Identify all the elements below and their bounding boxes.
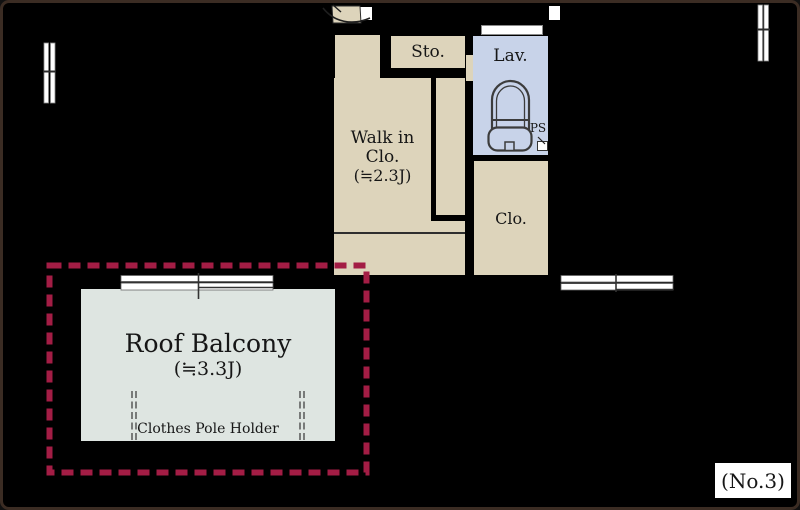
roof-balcony-title: Roof Balcony [81, 330, 335, 358]
plan-number-box: (No.3) [715, 463, 791, 498]
clothes-pole-holder-label: Clothes Pole Holder [81, 422, 335, 438]
floor-plan: Sto. Walk in Clo. (≒2.3J) Lav. PS Clo. R… [0, 0, 800, 510]
walk-in-closet-size: (≒2.3J) [334, 167, 431, 185]
pipe-space-box [537, 141, 548, 151]
sliding-window-icon [561, 274, 673, 292]
window-icon [757, 5, 770, 61]
pipe-space-label: PS [527, 122, 549, 135]
lavatory-label: Lav. [473, 47, 548, 66]
entry-area [335, 35, 380, 78]
window-icon [43, 43, 56, 103]
closet-label: Clo. [495, 209, 527, 228]
interior-wall-line [334, 232, 465, 234]
walk-in-closet-label: Walk in Clo. (≒2.3J) [334, 129, 431, 185]
lavatory-window-icon [481, 25, 543, 35]
door-frame-block [360, 7, 372, 20]
storage-room: Sto. [391, 36, 465, 68]
closet-room: Clo. [474, 161, 548, 275]
storage-label: Sto. [411, 42, 445, 62]
interior-wall [431, 215, 465, 221]
interior-wall [431, 78, 436, 216]
plan-number-label: (No.3) [721, 469, 785, 493]
roof-balcony-size: (≒3.3J) [81, 359, 335, 380]
wall-opening [549, 6, 560, 20]
